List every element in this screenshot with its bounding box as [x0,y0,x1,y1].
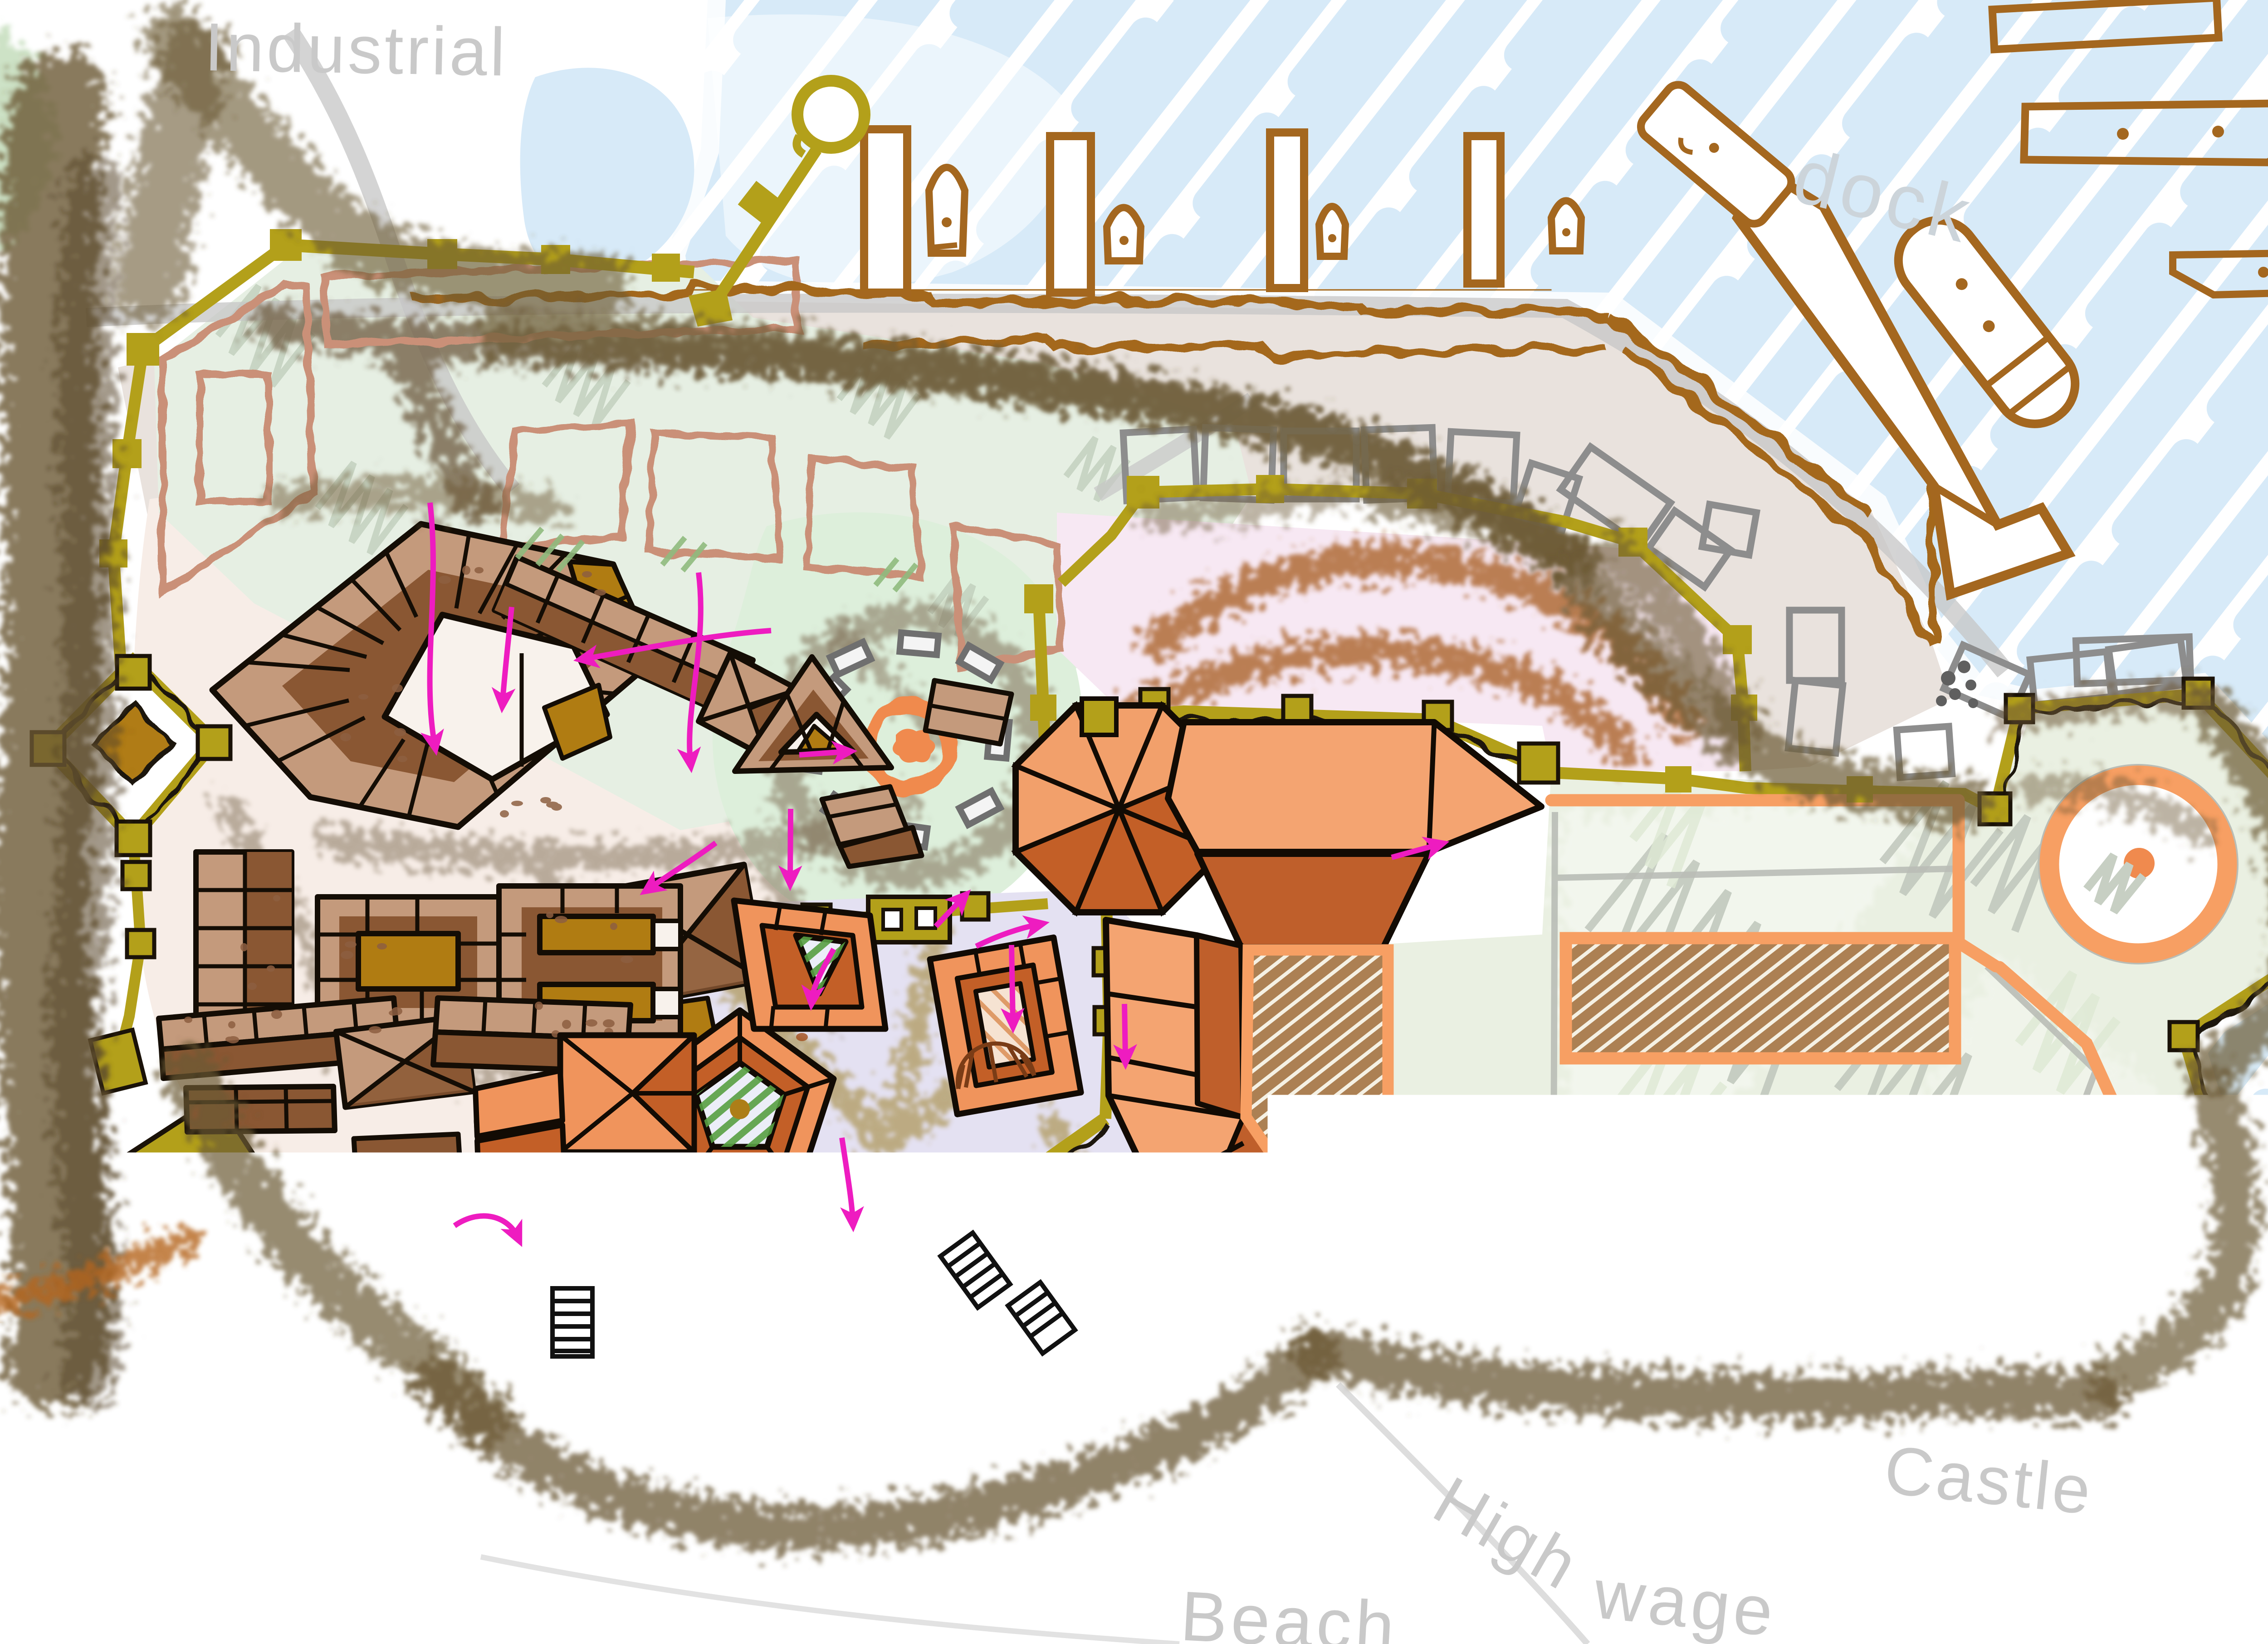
svg-text:Beach: Beach [1178,1576,1400,1644]
svg-text:Industrial: Industrial [204,9,508,90]
